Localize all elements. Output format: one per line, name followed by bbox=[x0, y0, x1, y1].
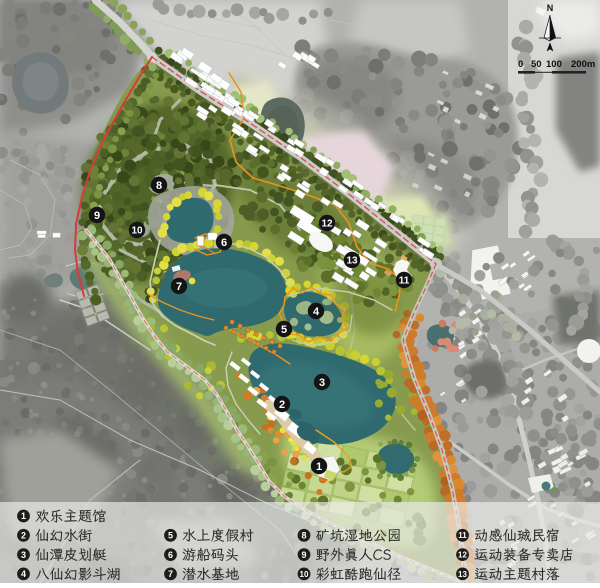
svg-text:4: 4 bbox=[21, 569, 26, 579]
svg-text:3: 3 bbox=[319, 377, 325, 389]
svg-text:13: 13 bbox=[346, 256, 358, 267]
svg-text:10: 10 bbox=[131, 226, 143, 237]
svg-text:200m: 200m bbox=[571, 59, 595, 70]
svg-text:12: 12 bbox=[458, 550, 467, 559]
svg-text:N: N bbox=[547, 3, 554, 13]
svg-text:11: 11 bbox=[399, 276, 410, 287]
svg-text:8: 8 bbox=[301, 531, 306, 541]
svg-text:0: 0 bbox=[518, 59, 523, 70]
svg-text:4: 4 bbox=[313, 306, 320, 318]
svg-text:13: 13 bbox=[458, 570, 467, 579]
svg-text:5: 5 bbox=[281, 324, 287, 336]
svg-text:9: 9 bbox=[301, 550, 306, 560]
svg-text:11: 11 bbox=[458, 531, 467, 540]
svg-text:1: 1 bbox=[316, 461, 322, 473]
svg-text:1: 1 bbox=[21, 511, 26, 521]
svg-text:8: 8 bbox=[156, 180, 162, 192]
svg-text:100: 100 bbox=[546, 59, 562, 70]
svg-text:6: 6 bbox=[221, 237, 227, 249]
svg-text:5: 5 bbox=[168, 531, 173, 541]
svg-text:6: 6 bbox=[168, 550, 173, 560]
svg-text:10: 10 bbox=[300, 570, 309, 579]
svg-text:2: 2 bbox=[279, 399, 285, 411]
svg-text:7: 7 bbox=[176, 281, 182, 293]
svg-text:9: 9 bbox=[94, 210, 100, 222]
svg-text:7: 7 bbox=[168, 569, 173, 579]
svg-text:50: 50 bbox=[531, 59, 542, 70]
svg-text:3: 3 bbox=[21, 550, 26, 560]
svg-text:12: 12 bbox=[321, 219, 333, 230]
svg-text:2: 2 bbox=[21, 531, 26, 541]
